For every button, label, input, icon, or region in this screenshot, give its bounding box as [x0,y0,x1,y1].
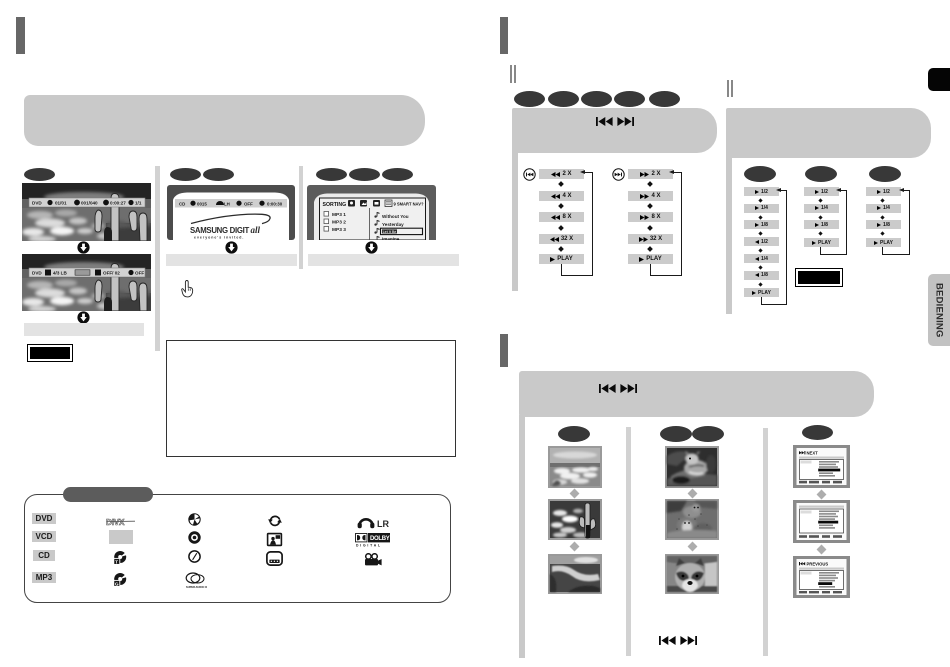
svg-text:MP3 1: MP3 1 [332,212,346,218]
svg-text:DIVX: DIVX [106,518,125,527]
svg-text:LR: LR [377,519,389,529]
svg-text:DIGITAL: DIGITAL [356,544,382,547]
svg-text:SUPER AUDIO CD: SUPER AUDIO CD [186,585,207,589]
svg-text:01/01: 01/01 [55,201,67,206]
svg-text:0:00:30: 0:00:30 [267,201,283,206]
svg-text:OFF: OFF [135,271,144,276]
svg-text:all: all [251,225,261,235]
svg-text:1/1: 1/1 [135,201,142,206]
svg-text:9 SMART NAV?: 9 SMART NAV? [394,201,424,206]
svg-text:0015: 0015 [197,201,207,206]
svg-text:NEXT: NEXT [807,451,819,456]
svg-text:Without You: Without You [382,214,409,219]
svg-text:Yesterday: Yesterday [382,222,404,227]
svg-text:OFF: OFF [244,201,253,206]
svg-text:CD: CD [179,201,185,206]
svg-text:everyone's invited.: everyone's invited. [194,236,244,240]
svg-text:4/3 LB: 4/3 LB [53,271,67,276]
svg-text:MP3 3: MP3 3 [332,227,346,233]
svg-text:Imagine: Imagine [382,236,400,240]
svg-text:DVD: DVD [32,201,42,206]
svg-text:Let It Be: Let It Be [383,230,397,234]
svg-text:LH: LH [224,201,230,206]
svg-text:MP3 2: MP3 2 [332,219,346,225]
svg-text:PREVIOUS: PREVIOUS [807,562,829,567]
svg-text:SORTING: SORTING [323,202,347,208]
svg-text:0:00:27: 0:00:27 [110,201,126,206]
svg-text:G: G [115,581,119,587]
svg-text:T: T [115,559,118,565]
svg-text:001/040: 001/040 [81,201,98,206]
svg-text:DVD: DVD [32,271,42,276]
svg-text:DOLBY: DOLBY [370,536,390,542]
svg-text:SAMSUNG DIGIT: SAMSUNG DIGIT [190,226,249,235]
svg-text:OFF/ 02: OFF/ 02 [103,271,120,276]
